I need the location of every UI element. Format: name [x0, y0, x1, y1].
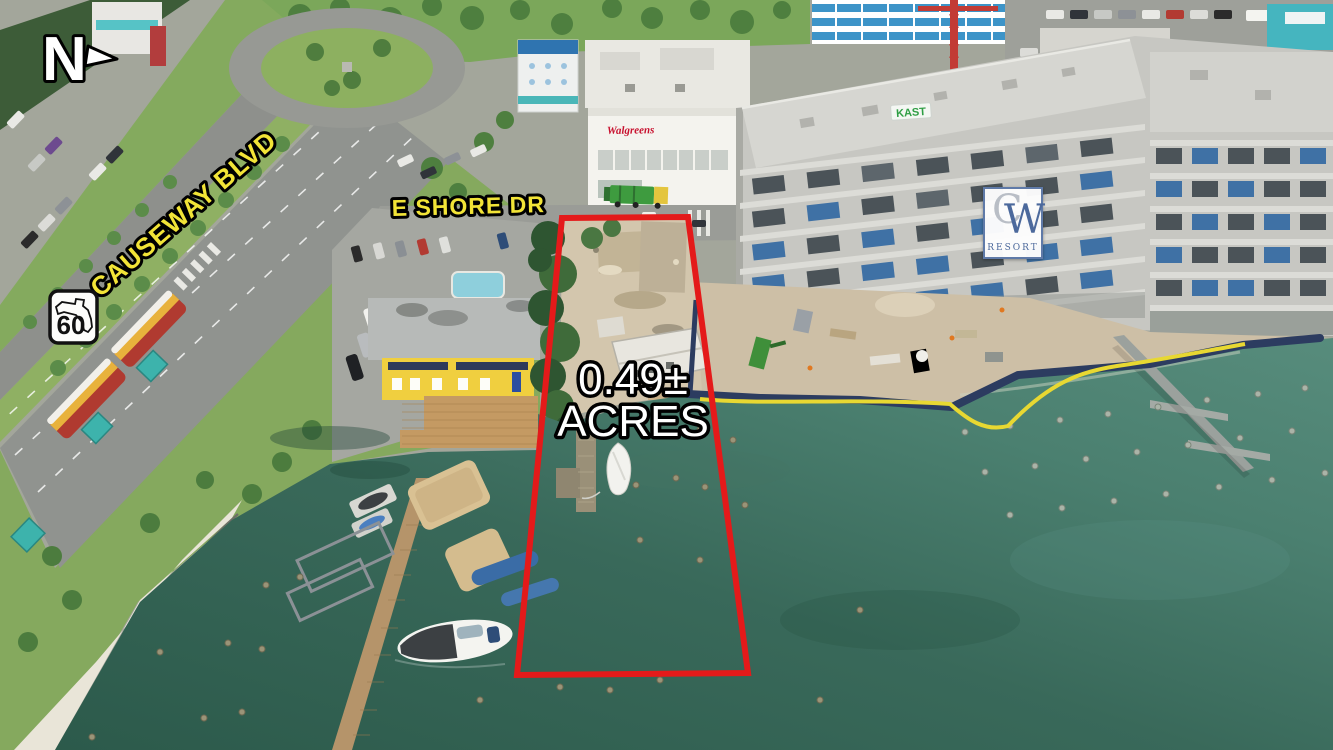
route-number: 60	[57, 310, 86, 340]
aerial-scene: Walgreens	[0, 0, 1333, 750]
roundabout	[229, 8, 465, 128]
pool	[452, 272, 504, 298]
svg-text:KAST: KAST	[896, 106, 927, 120]
retail-building	[585, 40, 750, 108]
resort-word: RESORT	[985, 243, 1041, 253]
e-shore-dr-label: E SHORE DR	[391, 191, 545, 221]
kast-sign: KAST	[890, 103, 931, 121]
north-letter: N	[42, 25, 87, 94]
acreage-unit: ACRES	[557, 397, 709, 446]
blue-white-building	[518, 40, 578, 112]
walgreens-sign: Walgreens	[607, 124, 655, 137]
yellow-building	[368, 298, 540, 400]
aerial-photo: Walgreens	[0, 0, 1333, 750]
cw-resort-logo: C W RESORT	[983, 187, 1043, 259]
florida-route-shield-icon: 60	[50, 291, 97, 343]
resort-letter-w: W	[1004, 197, 1045, 243]
